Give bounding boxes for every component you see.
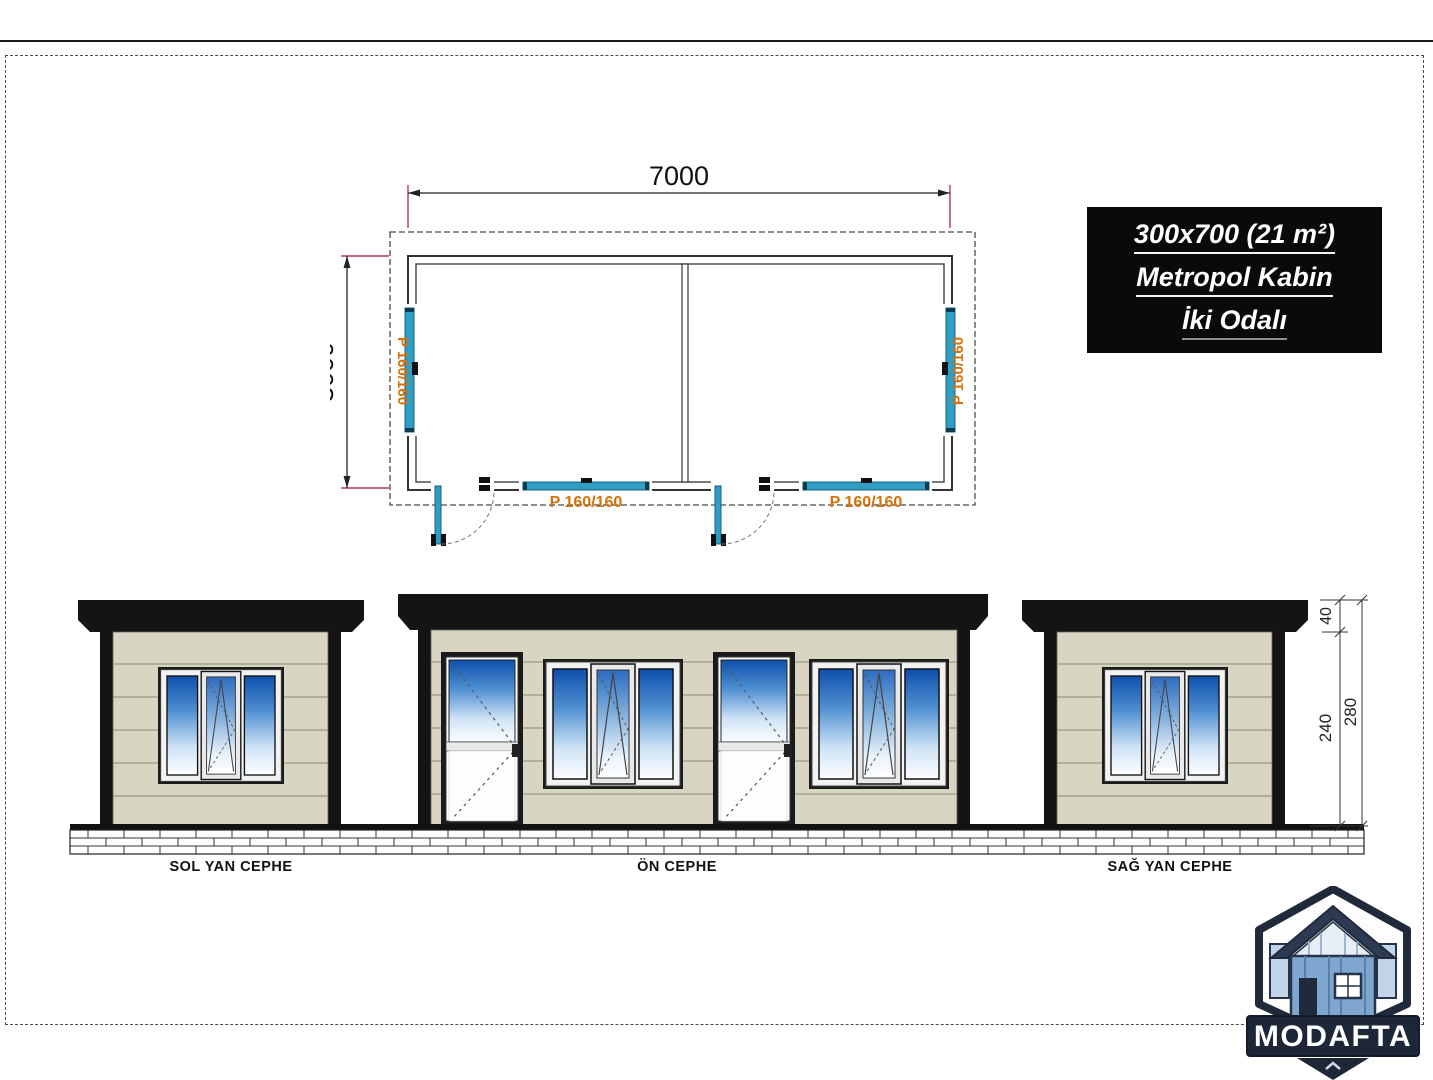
plan-window-label-right: P 160/160 <box>950 337 967 405</box>
front-post-left <box>418 628 431 826</box>
plan-window-label-bottom-right: P 160/160 <box>830 494 903 511</box>
front-post-right <box>957 628 970 826</box>
title-block: 300x700 (21 m²) Metropol Kabin İki Odalı <box>1087 207 1382 353</box>
plan-room-divider-wall <box>682 264 688 482</box>
front-door-2 <box>713 652 795 826</box>
front-elevation <box>398 594 988 826</box>
front-elevation-label: ÖN CEPHE <box>637 858 717 875</box>
plan-dim-height <box>341 256 389 488</box>
elevations: 40 240 280 SOL YAN CEPHE ÖN CEPHE SAĞ YA… <box>60 590 1375 880</box>
plan-dim-width-value: 7000 <box>649 161 709 191</box>
title-model: Metropol Kabin <box>1136 263 1333 297</box>
title-type: İki Odalı <box>1182 306 1287 340</box>
brick-pavement <box>70 830 1364 854</box>
front-window-2 <box>809 659 949 789</box>
plan-dim-width <box>408 185 950 228</box>
dim-total-height: 280 <box>1341 698 1360 726</box>
logo-pendant <box>1297 1058 1369 1080</box>
side-roof <box>78 600 364 632</box>
left-side-elevation <box>78 600 364 826</box>
floor-plan: P 160/160 P 160/160 P 160/160 P 160/160 … <box>330 160 990 580</box>
side-post-left <box>100 630 113 826</box>
drawing-sheet: P 160/160 P 160/160 P 160/160 P 160/160 … <box>0 0 1433 1080</box>
plan-window-label-bottom-left: P 160/160 <box>550 494 623 511</box>
right-side-elevation <box>1022 600 1308 826</box>
plan-window-label-left: P 160/160 <box>394 337 411 405</box>
dim-roof-height: 40 <box>1318 607 1335 625</box>
side-window <box>158 667 284 784</box>
right-elevation-label: SAĞ YAN CEPHE <box>1108 857 1233 875</box>
front-roof <box>398 594 988 630</box>
left-elevation-label: SOL YAN CEPHE <box>169 859 292 875</box>
plan-inner-wall <box>416 264 944 482</box>
front-door-1 <box>441 652 523 826</box>
modafta-logo: MODAFTA <box>1243 886 1423 1080</box>
front-window-1 <box>543 659 683 789</box>
plan-dim-height-value: 3000 <box>330 342 339 402</box>
title-size: 300x700 (21 m²) <box>1134 220 1335 254</box>
dim-wall-height: 240 <box>1316 714 1335 742</box>
ground-line <box>70 824 1364 830</box>
logo-text: MODAFTA <box>1254 1020 1412 1053</box>
sheet-top-rule <box>0 40 1433 42</box>
side-post-right <box>328 630 341 826</box>
